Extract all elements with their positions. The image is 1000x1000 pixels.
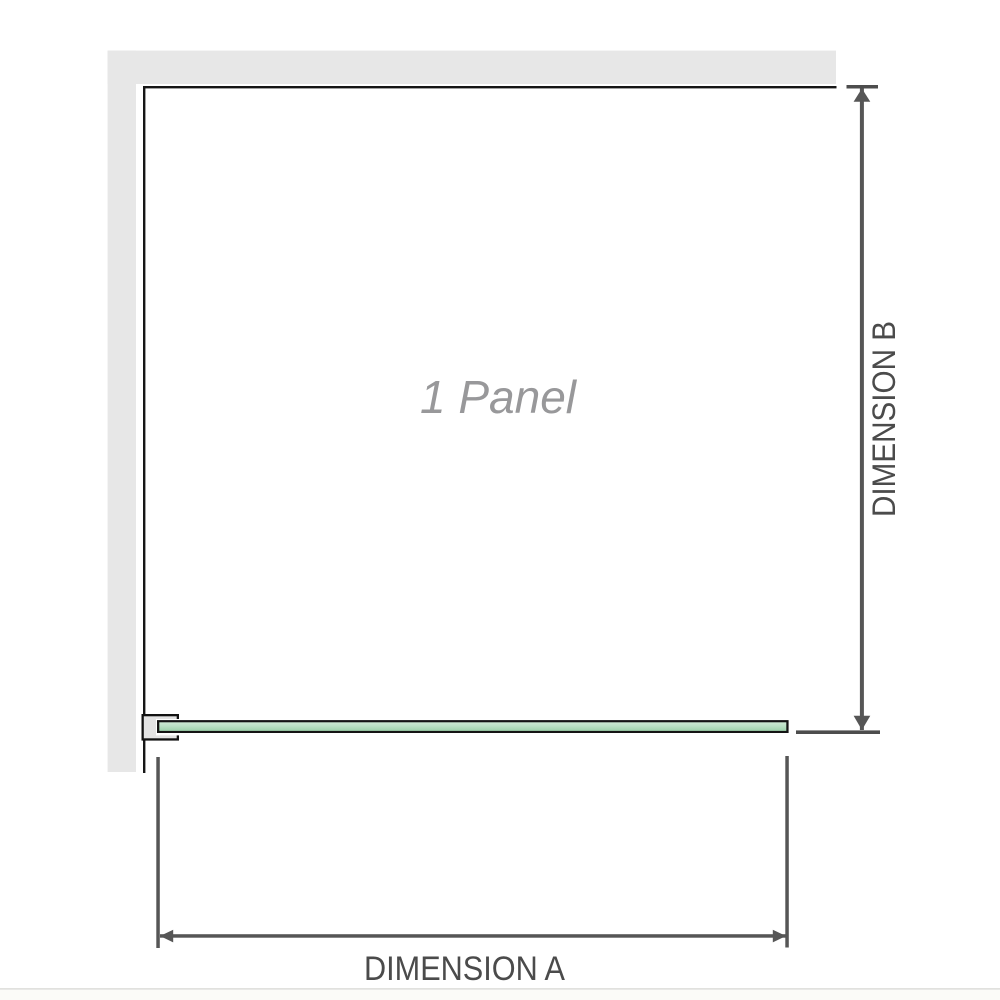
svg-text:1 Panel: 1 Panel: [420, 371, 578, 423]
svg-text:DIMENSION B: DIMENSION B: [866, 321, 902, 517]
svg-text:DIMENSION A: DIMENSION A: [364, 950, 565, 988]
